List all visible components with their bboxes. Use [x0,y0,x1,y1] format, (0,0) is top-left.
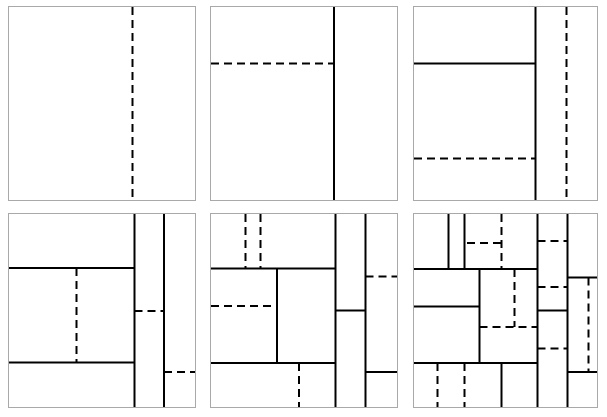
partition-panel-1 [8,6,196,201]
partition-panel-5 [210,213,398,408]
partition-panel-4 [8,213,196,408]
partition-figure [0,0,607,417]
partition-panel-6 [413,213,598,408]
partition-panel-3-canvas [414,7,597,200]
partition-panel-5-canvas [211,214,397,407]
partition-panel-1-canvas [9,7,195,200]
partition-panel-6-canvas [414,214,597,407]
partition-panel-2-canvas [211,7,397,200]
partition-panel-2 [210,6,398,201]
partition-panel-4-canvas [9,214,195,407]
partition-panel-3 [413,6,598,201]
